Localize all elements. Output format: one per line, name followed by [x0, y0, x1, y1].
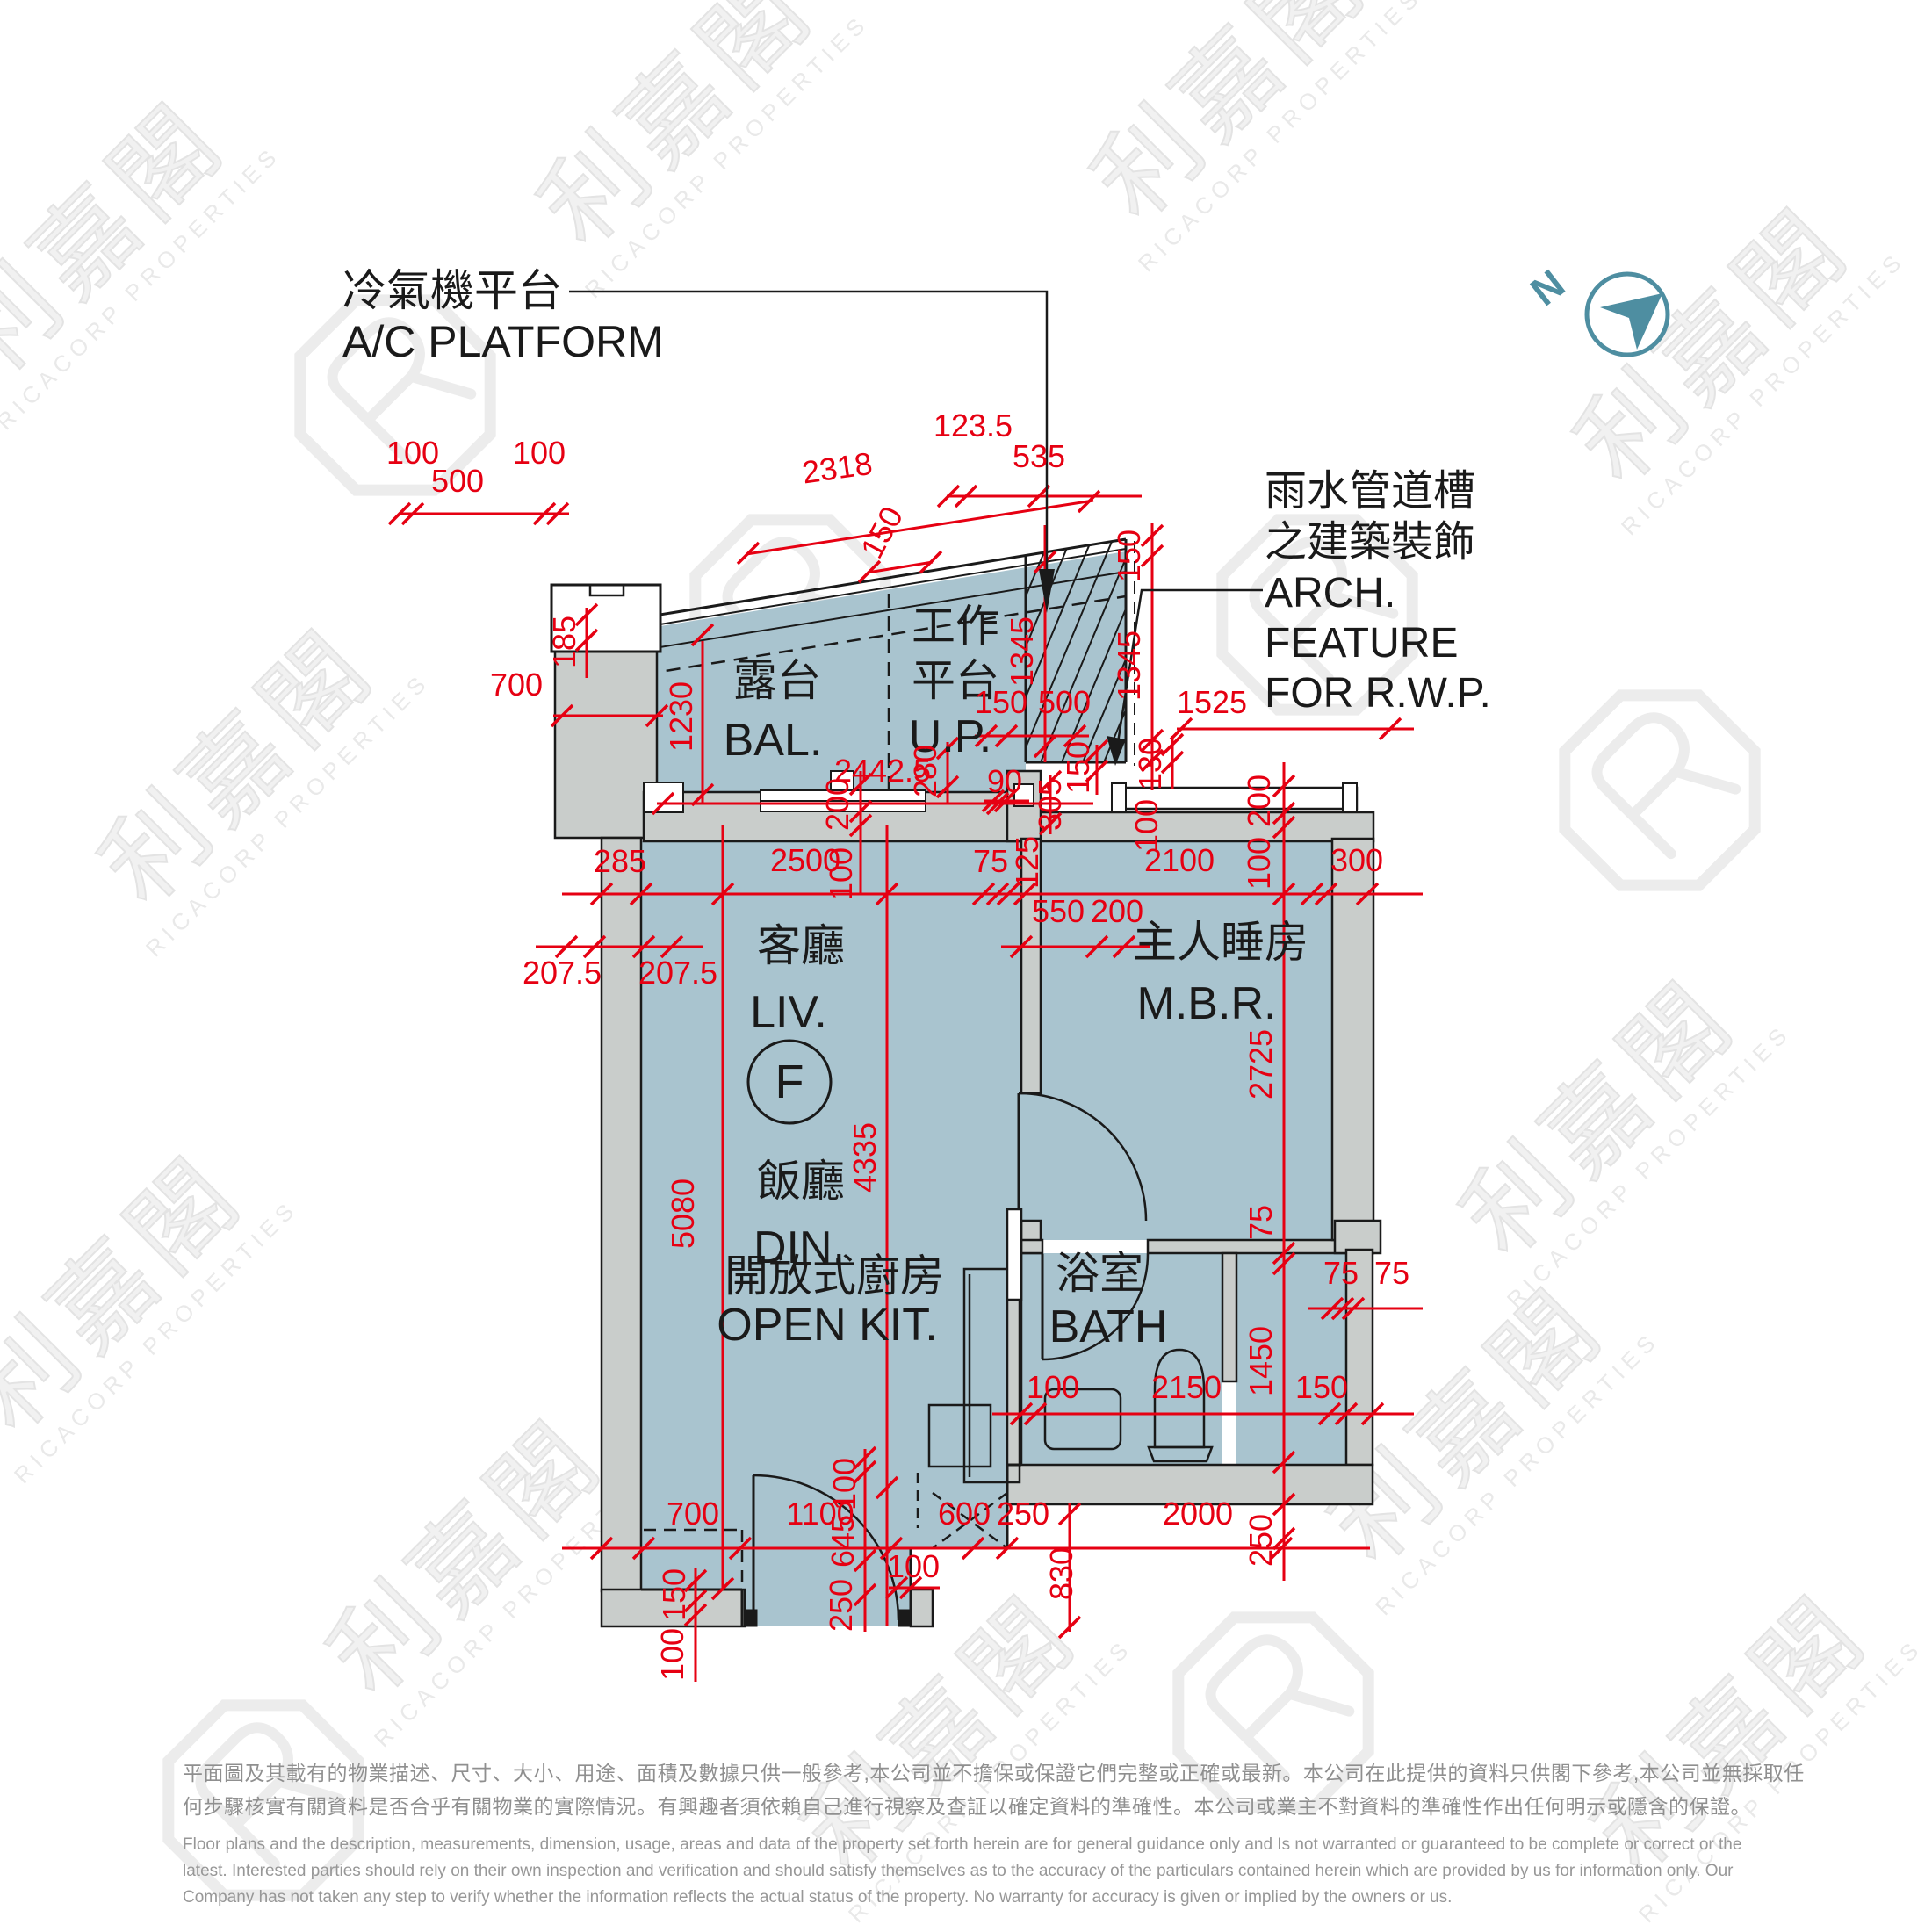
room-label: OPEN KIT.	[717, 1300, 937, 1351]
dimension-label: 1525	[1177, 684, 1247, 720]
room-label: 工作	[912, 602, 999, 651]
wall-left	[602, 838, 641, 1591]
wall-bottom-door-right	[911, 1590, 933, 1626]
svg-text:利嘉閣: 利嘉閣	[0, 81, 248, 397]
dimension-label: 200	[1241, 775, 1277, 827]
dimension-label: 645	[825, 1515, 861, 1568]
disclaimer-en-line2: latest. Interested parties should rely o…	[183, 1858, 1755, 1885]
dimension-label: 200	[1091, 893, 1143, 929]
room-label: 飯廳	[757, 1157, 845, 1206]
dimension-label: 500	[1038, 684, 1091, 720]
dimension-label: 1450	[1243, 1326, 1279, 1396]
dimension-label: 2100	[1144, 842, 1215, 878]
dimension-label: 100	[654, 1628, 690, 1681]
disclaimer-block: 平面圖及其載有的物業描述、尺寸、大小、用途、面積及數據只供一般參考,本公司並不擔…	[183, 1756, 1755, 1911]
dimension-label: 600	[938, 1496, 991, 1532]
room-label: M.B.R.	[1137, 978, 1277, 1029]
dimension-label: 535	[1013, 438, 1065, 474]
dimension-label: 280	[907, 745, 943, 797]
dimension-label: 150	[1111, 530, 1147, 582]
annotation-label: 雨水管道槽	[1265, 468, 1475, 515]
room-label: 主人睡房	[1133, 918, 1308, 967]
dimension-label: 100	[1241, 837, 1277, 890]
watermark-text: 利嘉閣RICACORP PROPERTIES	[1054, 0, 1427, 277]
watermark-text: 利嘉閣RICACORP PROPERTIES	[0, 1115, 303, 1489]
disclaimer-zh-line2: 何步驟核實有關資料是否合乎有關物業的實際情況。有興趣者須依賴自己進行視察及查証以…	[183, 1790, 1755, 1823]
dimension-label: 90	[987, 763, 1022, 799]
dimension-label: 75	[1374, 1255, 1409, 1291]
annotation-label: ARCH.	[1265, 570, 1395, 616]
dimension-label: 500	[431, 463, 484, 499]
dimension-label: 300	[1330, 842, 1383, 878]
dimension-label: 75	[1323, 1255, 1359, 1291]
annotation-label: FOR R.W.P.	[1265, 670, 1491, 717]
floor-plan-drawing: 利嘉閣RICACORP PROPERTIES利嘉閣RICACORP PROPER…	[0, 0, 1932, 1932]
dimension-label: 100	[513, 435, 566, 471]
dimension-label: 207.5	[638, 955, 717, 991]
dimension-label: 285	[594, 843, 646, 879]
disclaimer-zh-line1: 平面圖及其載有的物業描述、尺寸、大小、用途、面積及數據只供一般參考,本公司並不擔…	[183, 1756, 1755, 1790]
room-label: LIV.	[750, 987, 827, 1038]
room-label: 開放式廚房	[724, 1251, 944, 1301]
watermark-logo	[1525, 656, 1793, 924]
dimension-label: 200	[819, 778, 855, 831]
watermark-text: 利嘉閣RICACORP PROPERTIES	[0, 61, 285, 435]
room-label: BAL.	[724, 715, 823, 766]
wall-right-step	[1335, 1221, 1381, 1253]
room-label: F	[775, 1056, 804, 1108]
dimension-label: 2000	[1163, 1496, 1233, 1532]
dimension-label: 130	[1132, 738, 1168, 790]
watermark-text: 利嘉閣RICACORP PROPERTIES	[1423, 940, 1796, 1313]
watermark-text: 利嘉閣RICACORP PROPERTIES	[61, 588, 435, 962]
annotation-label: 之建築裝飾	[1265, 519, 1475, 566]
disclaimer-en-line1: Floor plans and the description, measure…	[183, 1832, 1755, 1858]
dimension-label: 830	[1043, 1547, 1079, 1600]
wall-mbr-top	[1041, 812, 1373, 841]
dimension-label: 125	[1009, 836, 1045, 889]
compass-north-label: N	[1522, 261, 1573, 314]
dimension-label: 5080	[665, 1179, 701, 1249]
dimension-label: 100	[826, 1458, 862, 1510]
dimension-label: 4335	[847, 1122, 883, 1193]
dimension-label: 2318	[800, 445, 875, 491]
dimension-label: 150	[1060, 741, 1096, 794]
dimension-label: 2150	[1151, 1369, 1222, 1405]
dimension-label: 207.5	[523, 955, 602, 991]
watermark-text: 利嘉閣RICACORP PROPERTIES	[501, 0, 874, 303]
dimension-label: 700	[667, 1496, 719, 1532]
dimension-label: 123.5	[934, 407, 1013, 443]
room-label: 露台	[733, 656, 821, 705]
room-label: 客廳	[757, 921, 845, 970]
room-label: 浴室	[1056, 1249, 1143, 1298]
dimension-label: 100	[887, 1548, 940, 1584]
room-label: BATH	[1049, 1301, 1168, 1352]
annotation-label: 冷氣機平台	[342, 266, 562, 315]
dimension-label: 150	[1295, 1369, 1348, 1405]
svg-text:利嘉閣: 利嘉閣	[520, 0, 836, 265]
dimension-label: 700	[490, 667, 543, 703]
dimension-label: 250	[823, 1579, 859, 1632]
wall-bath-closet	[1222, 1253, 1236, 1381]
annotation-label: A/C PLATFORM	[342, 317, 664, 366]
svg-text:利嘉閣: 利嘉閣	[1073, 0, 1389, 239]
dimension-label: 2500	[770, 842, 840, 878]
wall-left-column	[555, 652, 657, 838]
wall-right-mbr	[1332, 839, 1373, 1240]
svg-text:利嘉閣: 利嘉閣	[0, 1135, 265, 1451]
dimension-label: 550	[1032, 893, 1085, 929]
dimension-label: 1230	[663, 681, 699, 752]
dimension-label: 1345	[1004, 616, 1040, 687]
mbr-doorway-floor	[1021, 1093, 1041, 1221]
floor-plan-page: 利嘉閣RICACORP PROPERTIES利嘉閣RICACORP PROPER…	[0, 0, 1932, 1932]
dimension-label: 75	[973, 843, 1008, 879]
dimension-label: 150	[656, 1568, 692, 1621]
dimension-label: 185	[546, 616, 582, 668]
dimension-label: 100	[1027, 1369, 1079, 1405]
dimension-label: 150	[975, 684, 1027, 720]
annotation-label: FEATURE	[1265, 620, 1458, 667]
balcony-planter	[644, 782, 683, 812]
dimension-label: 2725	[1243, 1029, 1279, 1099]
dimension-label: 250	[997, 1496, 1049, 1532]
disclaimer-en-line3: Company has not taken any step to verify…	[183, 1885, 1755, 1911]
wall-bath-top-left	[1021, 1240, 1042, 1253]
watermark-text: 利嘉閣RICACORP PROPERTIES	[1537, 167, 1910, 540]
dimension-label: 75	[1243, 1205, 1279, 1240]
dimension-label: 250	[1243, 1514, 1279, 1567]
dimension-label: 1345	[1111, 631, 1147, 701]
